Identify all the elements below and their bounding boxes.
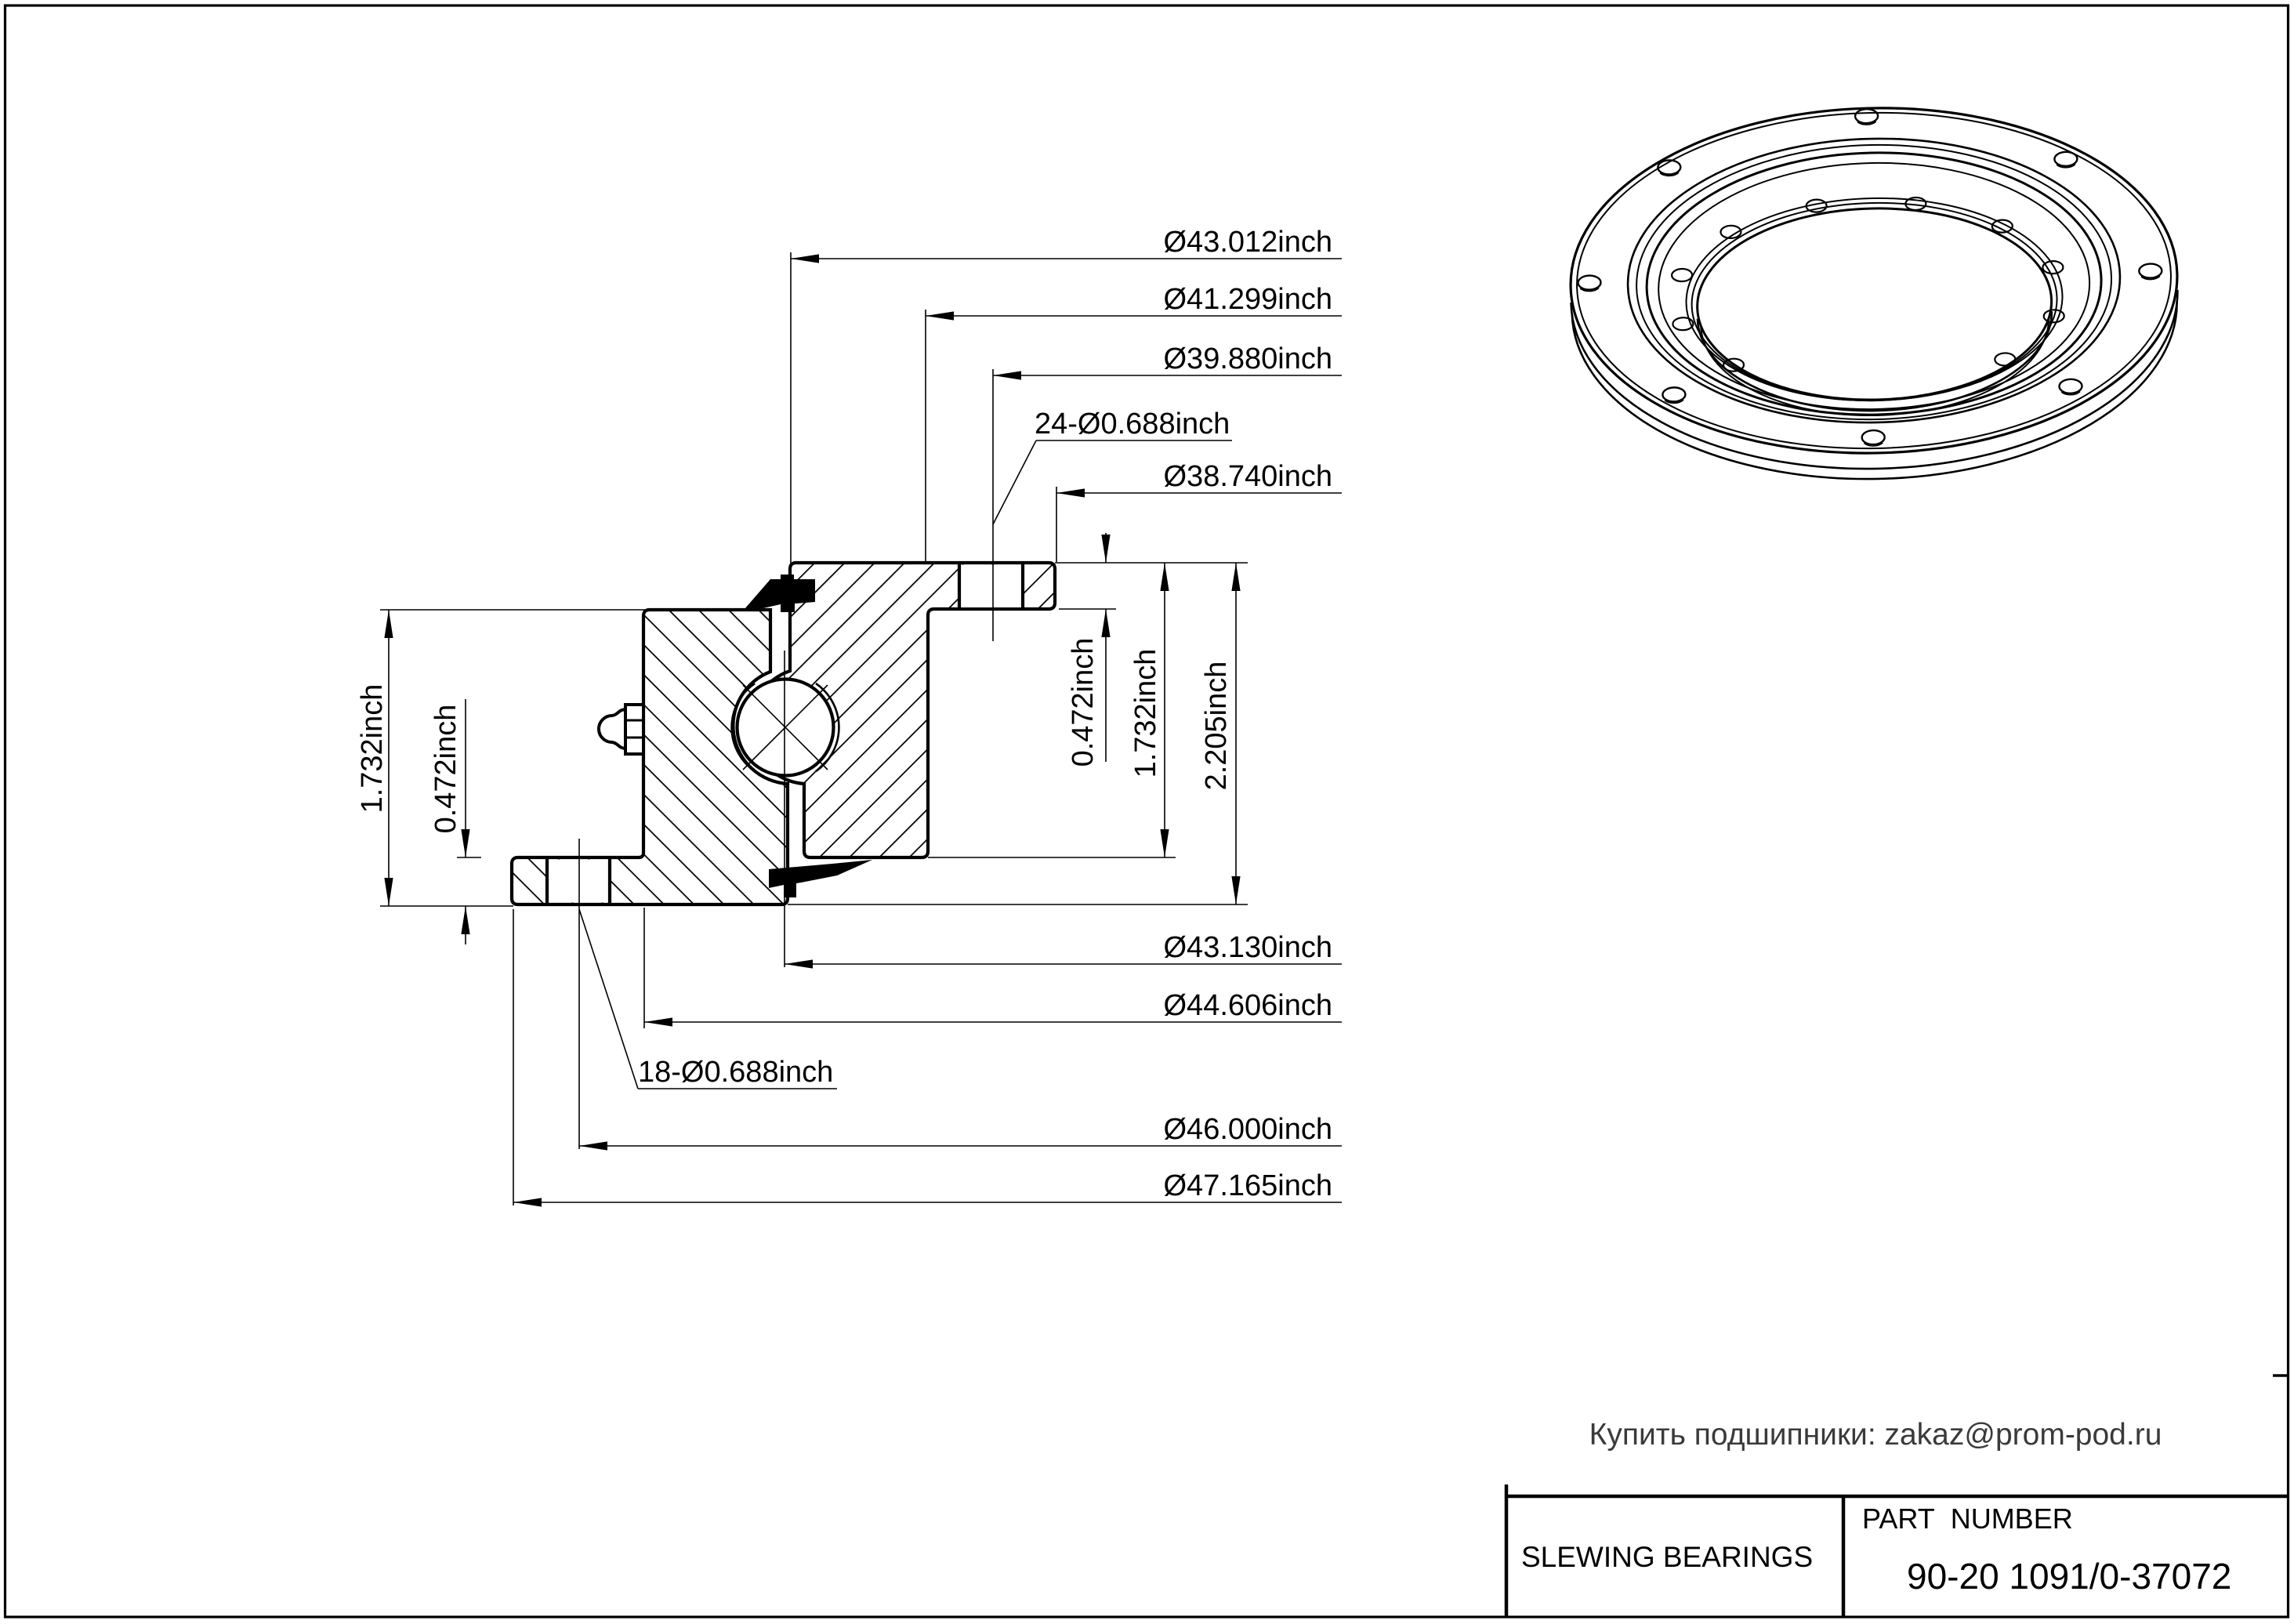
svg-text:90-20 1091/0-37072: 90-20 1091/0-37072 <box>1907 1556 2231 1597</box>
svg-text:Ø43.012inch: Ø43.012inch <box>1164 226 1333 259</box>
svg-text:0.472inch: 0.472inch <box>429 705 462 834</box>
svg-text:0.472inch: 0.472inch <box>1067 638 1100 767</box>
svg-text:1.732inch: 1.732inch <box>356 684 389 814</box>
svg-text:Ø41.299inch: Ø41.299inch <box>1164 283 1333 316</box>
svg-text:Ø46.000inch: Ø46.000inch <box>1164 1113 1333 1146</box>
svg-text:18-Ø0.688inch: 18-Ø0.688inch <box>638 1056 833 1089</box>
svg-text:PART NUMBER: PART NUMBER <box>1862 1503 2073 1535</box>
svg-text:SLEWING BEARINGS: SLEWING BEARINGS <box>1521 1541 1813 1573</box>
svg-text:Ø39.880inch: Ø39.880inch <box>1164 343 1333 375</box>
svg-text:Ø47.165inch: Ø47.165inch <box>1164 1169 1333 1202</box>
svg-text:Ø43.130inch: Ø43.130inch <box>1164 931 1333 964</box>
svg-text:1.732inch: 1.732inch <box>1129 649 1162 778</box>
svg-text:Ø44.606inch: Ø44.606inch <box>1164 989 1333 1022</box>
svg-text:24-Ø0.688inch: 24-Ø0.688inch <box>1035 408 1230 440</box>
svg-text:Купить подшипники: zakaz@prom-: Купить подшипники: zakaz@prom-pod.ru <box>1589 1418 2162 1452</box>
svg-text:Ø38.740inch: Ø38.740inch <box>1164 460 1333 493</box>
svg-text:2.205inch: 2.205inch <box>1200 662 1233 791</box>
